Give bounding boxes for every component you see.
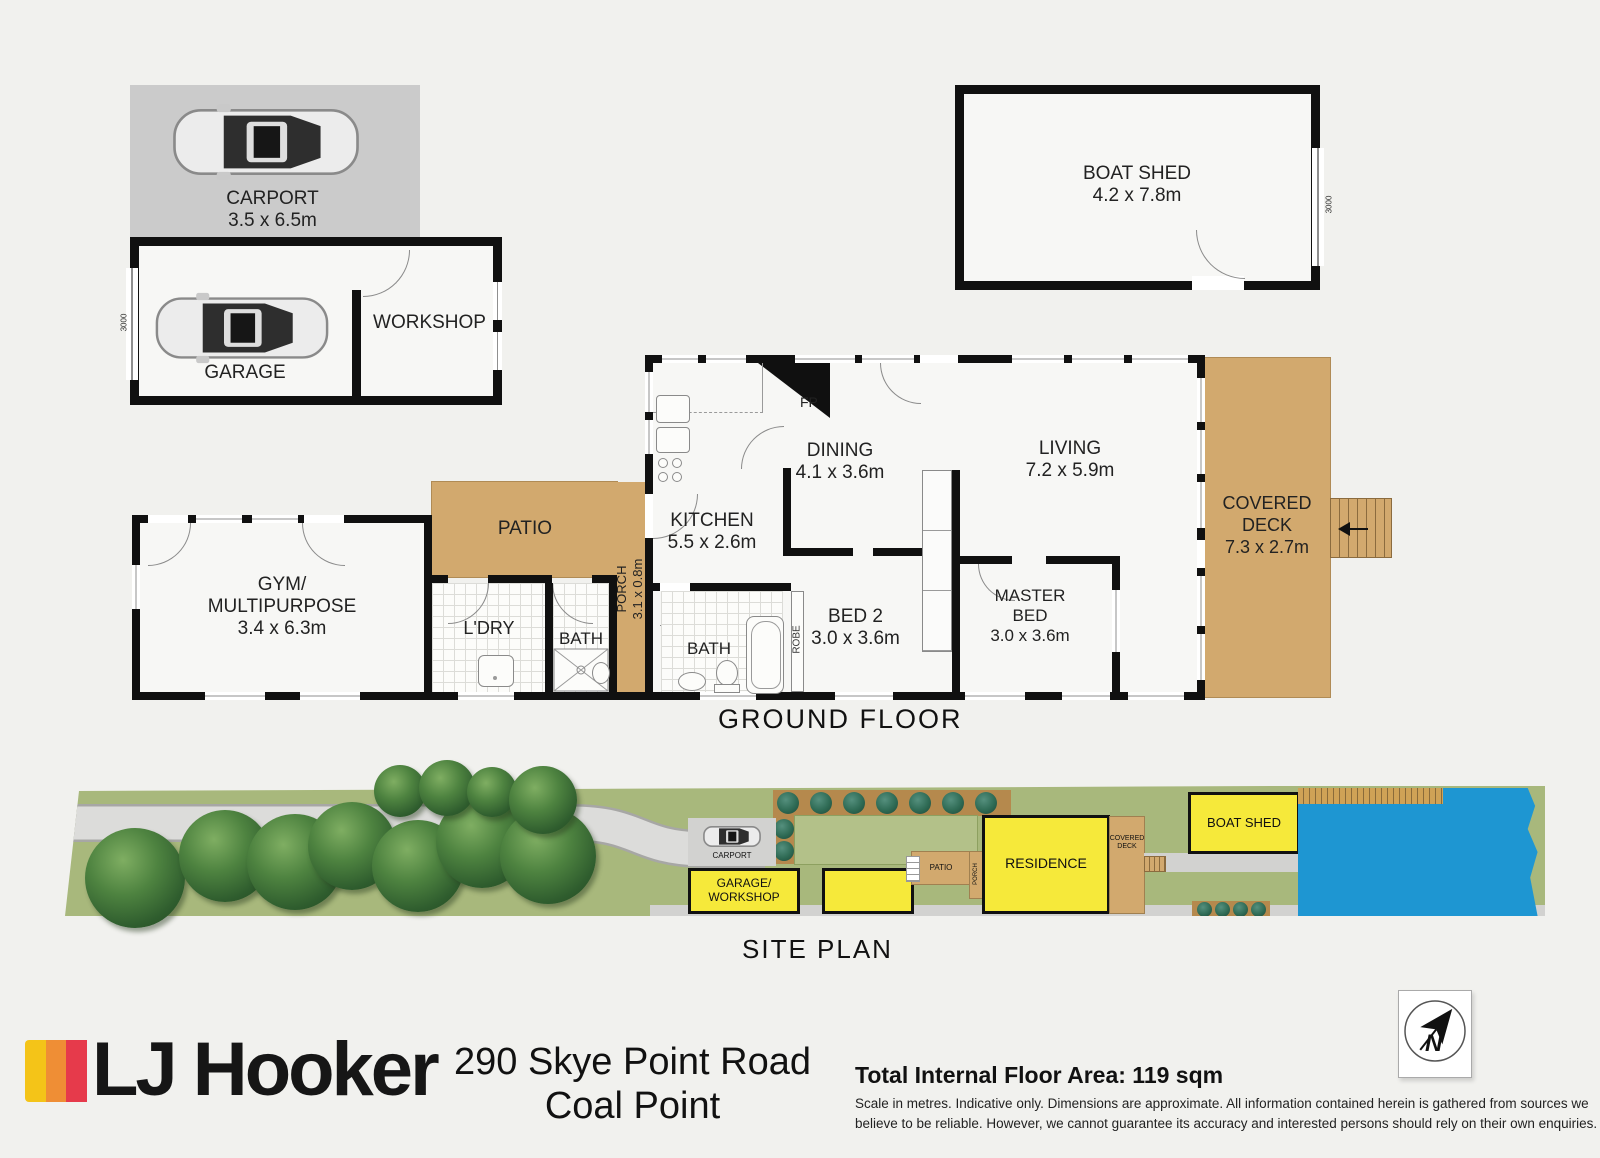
bush [1233, 902, 1248, 917]
stove-burner [658, 472, 668, 482]
living-label: LIVING 7.2 x 5.9m [975, 438, 1165, 482]
hedge-tree [876, 792, 898, 814]
window [862, 355, 914, 363]
property-address: 290 Skye Point Road Coal Point [400, 1040, 865, 1128]
disclaimer-line1: Scale in metres. Indicative only. Dimens… [855, 1096, 1589, 1111]
window [252, 515, 298, 523]
wall [952, 470, 960, 692]
sp-patio-label: PATIO [912, 863, 970, 872]
hedge-tree [975, 792, 997, 814]
workshop-label: WORKSHOP [362, 312, 497, 334]
window [1062, 692, 1110, 700]
window [645, 420, 653, 454]
wall [424, 575, 432, 700]
sp-residence-wing [822, 868, 914, 914]
toilet-tank [714, 684, 740, 693]
window [1197, 482, 1205, 528]
window [132, 565, 140, 609]
boat-shed-door-opening [1312, 148, 1324, 266]
sp-garage-label: GARAGE/ WORKSHOP [688, 876, 800, 904]
window [458, 692, 514, 700]
kitchen-sink [656, 395, 690, 423]
tree [509, 766, 577, 834]
wall [432, 575, 448, 583]
ljhooker-logo-mark [25, 1040, 87, 1102]
stairs-arrow-line [1348, 528, 1368, 530]
laundry-sink [478, 655, 514, 687]
toilet [716, 660, 738, 686]
fireplace [758, 363, 830, 418]
sp-path [1144, 853, 1298, 872]
window [1197, 576, 1205, 626]
window [1012, 355, 1064, 363]
carport-label: CARPORT 3.5 x 6.5m [175, 188, 370, 232]
window [196, 515, 242, 523]
wall [592, 575, 617, 583]
garage-door-dim: 3000 [119, 314, 128, 332]
wall [1046, 556, 1120, 564]
bush [1197, 902, 1212, 917]
stove-burner [672, 458, 682, 468]
garage-label: GARAGE [160, 362, 330, 384]
toilet [592, 662, 610, 684]
deck-door-gap [1197, 540, 1205, 568]
logo-stripe-yellow [25, 1040, 46, 1102]
jetty [1298, 788, 1443, 804]
site-plan-title: SITE PLAN [742, 934, 893, 965]
stove-burner [658, 458, 668, 468]
hedge-tree [774, 841, 794, 861]
dining-label: DINING 4.1 x 3.6m [750, 440, 930, 484]
gym-door-gap [304, 515, 344, 523]
entry-door-gap [920, 355, 958, 363]
ljhooker-wordmark: LJ Hooker [92, 1026, 437, 1113]
sp-stairs [1144, 856, 1166, 872]
fireplace-label: FP [800, 392, 818, 413]
window [645, 372, 653, 412]
stove-burner [672, 472, 682, 482]
gym-label: GYM/ MULTIPURPOSE 3.4 x 6.3m [162, 574, 402, 640]
window [965, 692, 1025, 700]
bath2-label: BATH [664, 638, 754, 659]
window [662, 355, 698, 363]
logo-stripe-orange [46, 1040, 67, 1102]
window [1197, 378, 1205, 422]
workshop-window [493, 332, 502, 370]
window [205, 692, 265, 700]
wall [488, 575, 552, 583]
floorplan-page: CARPORT 3.5 x 6.5m 3000 GARAGE WORKSHOP … [0, 0, 1600, 1158]
wall-garage-partition [352, 290, 361, 396]
sp-covered-deck [1110, 817, 1144, 913]
window [795, 355, 855, 363]
hedge-tree [909, 792, 931, 814]
bath1-label: BATH [538, 628, 624, 649]
window [706, 355, 746, 363]
compass: N [1398, 990, 1472, 1078]
kitchen-label: KITCHEN 5.5 x 2.6m [622, 510, 802, 554]
tree [85, 828, 185, 928]
kitchen-sink [656, 427, 690, 453]
bush [1215, 902, 1230, 917]
disclaimer-line2: believe to be reliable. However, we cann… [855, 1116, 1597, 1131]
bed2-label: BED 2 3.0 x 3.6m [768, 606, 943, 650]
wall [960, 556, 1012, 564]
car-icon [152, 282, 332, 374]
window [1132, 355, 1188, 363]
master-bed-label: MASTER BED 3.0 x 3.6m [945, 586, 1115, 646]
window [1197, 634, 1205, 680]
gym-door-gap [148, 515, 188, 523]
window [835, 692, 893, 700]
hedge-tree [774, 819, 794, 839]
hedge-tree [810, 792, 832, 814]
window [700, 692, 756, 700]
car-icon [168, 98, 364, 186]
ground-floor-title: GROUND FLOOR [718, 704, 963, 735]
boat-shed-door-dim: 3000 [1324, 196, 1333, 214]
compass-n-label: N [1425, 1030, 1443, 1057]
basin [678, 672, 706, 691]
window [1072, 355, 1124, 363]
hedge-tree [843, 792, 865, 814]
water [1298, 788, 1545, 916]
sp-deck-label: COVERED DECK [1105, 835, 1149, 851]
sp-car-icon [702, 823, 762, 850]
boat-shed-label: BOAT SHED 4.2 x 7.8m [1037, 163, 1237, 207]
sp-residence-label: RESIDENCE [982, 855, 1110, 871]
logo-stripe-red [66, 1040, 87, 1102]
window [300, 692, 360, 700]
patio-label: PATIO [440, 518, 610, 540]
laundry-label: L'DRY [434, 618, 544, 639]
bush [1251, 902, 1266, 917]
sp-carport-label: CARPORT [688, 851, 776, 860]
window [1128, 692, 1184, 700]
hedge-tree [777, 792, 799, 814]
window [1197, 430, 1205, 474]
hedge-tree [942, 792, 964, 814]
covered-deck-label: COVERED DECK 7.3 x 2.7m [1207, 492, 1327, 558]
sp-boat-shed-label: BOAT SHED [1188, 815, 1300, 830]
floor-area-text: Total Internal Floor Area: 119 sqm [855, 1062, 1223, 1089]
bath-door-gap [660, 583, 690, 591]
sp-porch-label: PORCH [973, 856, 979, 892]
